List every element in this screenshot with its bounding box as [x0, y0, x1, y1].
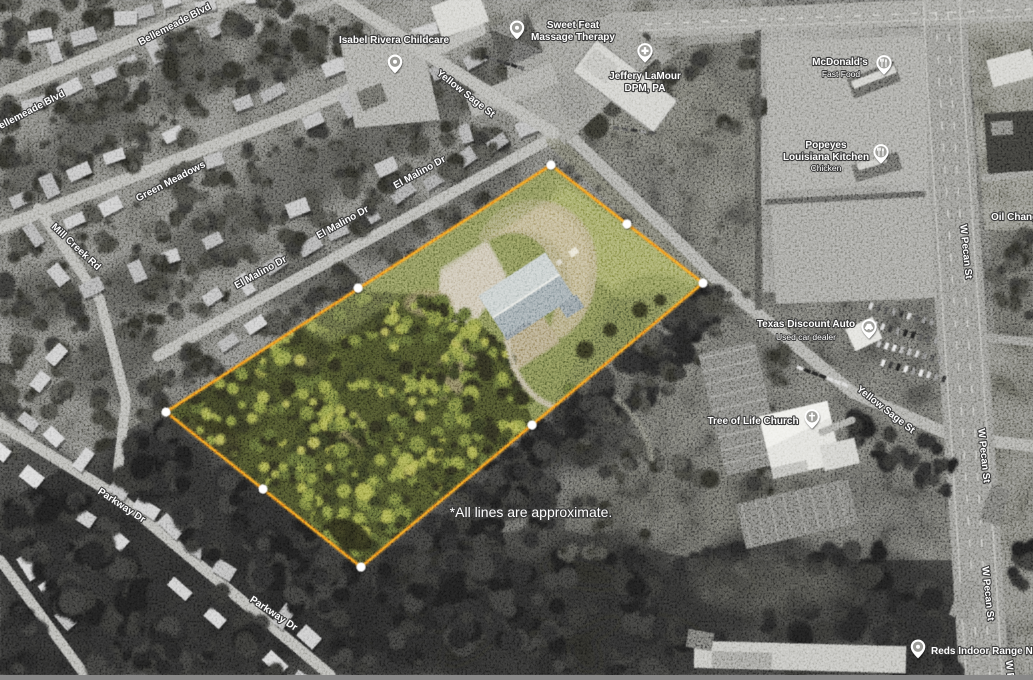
svg-text:Isabel Rivera Childcare: Isabel Rivera Childcare: [339, 35, 449, 46]
svg-text:Texas Discount Auto: Texas Discount Auto: [757, 319, 855, 330]
svg-text:Sweet Feat: Sweet Feat: [547, 20, 600, 31]
svg-text:Jeffery LaMour: Jeffery LaMour: [609, 71, 681, 82]
svg-text:Reds Indoor Range No: Reds Indoor Range No: [931, 646, 1033, 657]
svg-text:Tree of Life Church: Tree of Life Church: [707, 416, 798, 427]
svg-text:DPM, PA: DPM, PA: [625, 83, 666, 94]
svg-text:Chicken: Chicken: [811, 163, 842, 173]
svg-text:Fast Food: Fast Food: [822, 69, 861, 79]
svg-text:Oil Chang: Oil Chang: [991, 212, 1033, 223]
svg-text:Massage Therapy: Massage Therapy: [531, 32, 615, 43]
svg-text:Popeyes: Popeyes: [805, 140, 847, 151]
svg-text:Louisiana Kitchen: Louisiana Kitchen: [783, 152, 869, 163]
svg-text:Used car dealer: Used car dealer: [776, 332, 836, 342]
svg-text:*All lines are approximate.: *All lines are approximate.: [450, 504, 613, 520]
svg-text:McDonald's: McDonald's: [812, 57, 868, 68]
svg-text:W Pe: W Pe: [1003, 660, 1017, 675]
